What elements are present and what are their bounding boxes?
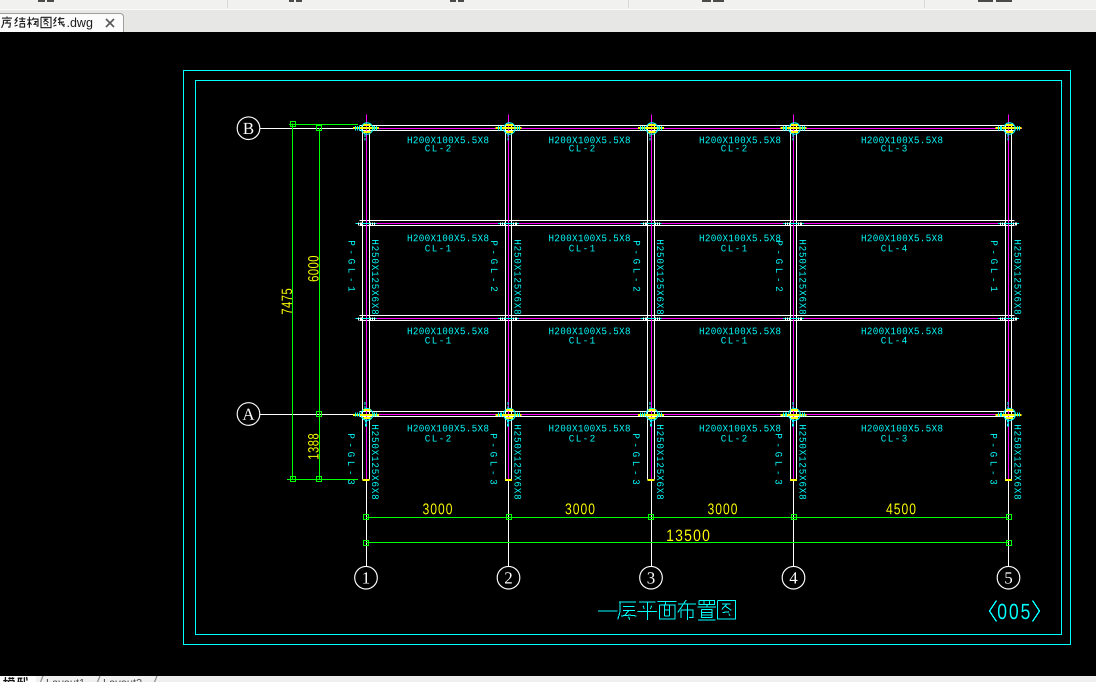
svg-text:Layout2: Layout2	[103, 678, 142, 682]
svg-text:Layout1: Layout1	[46, 678, 85, 682]
